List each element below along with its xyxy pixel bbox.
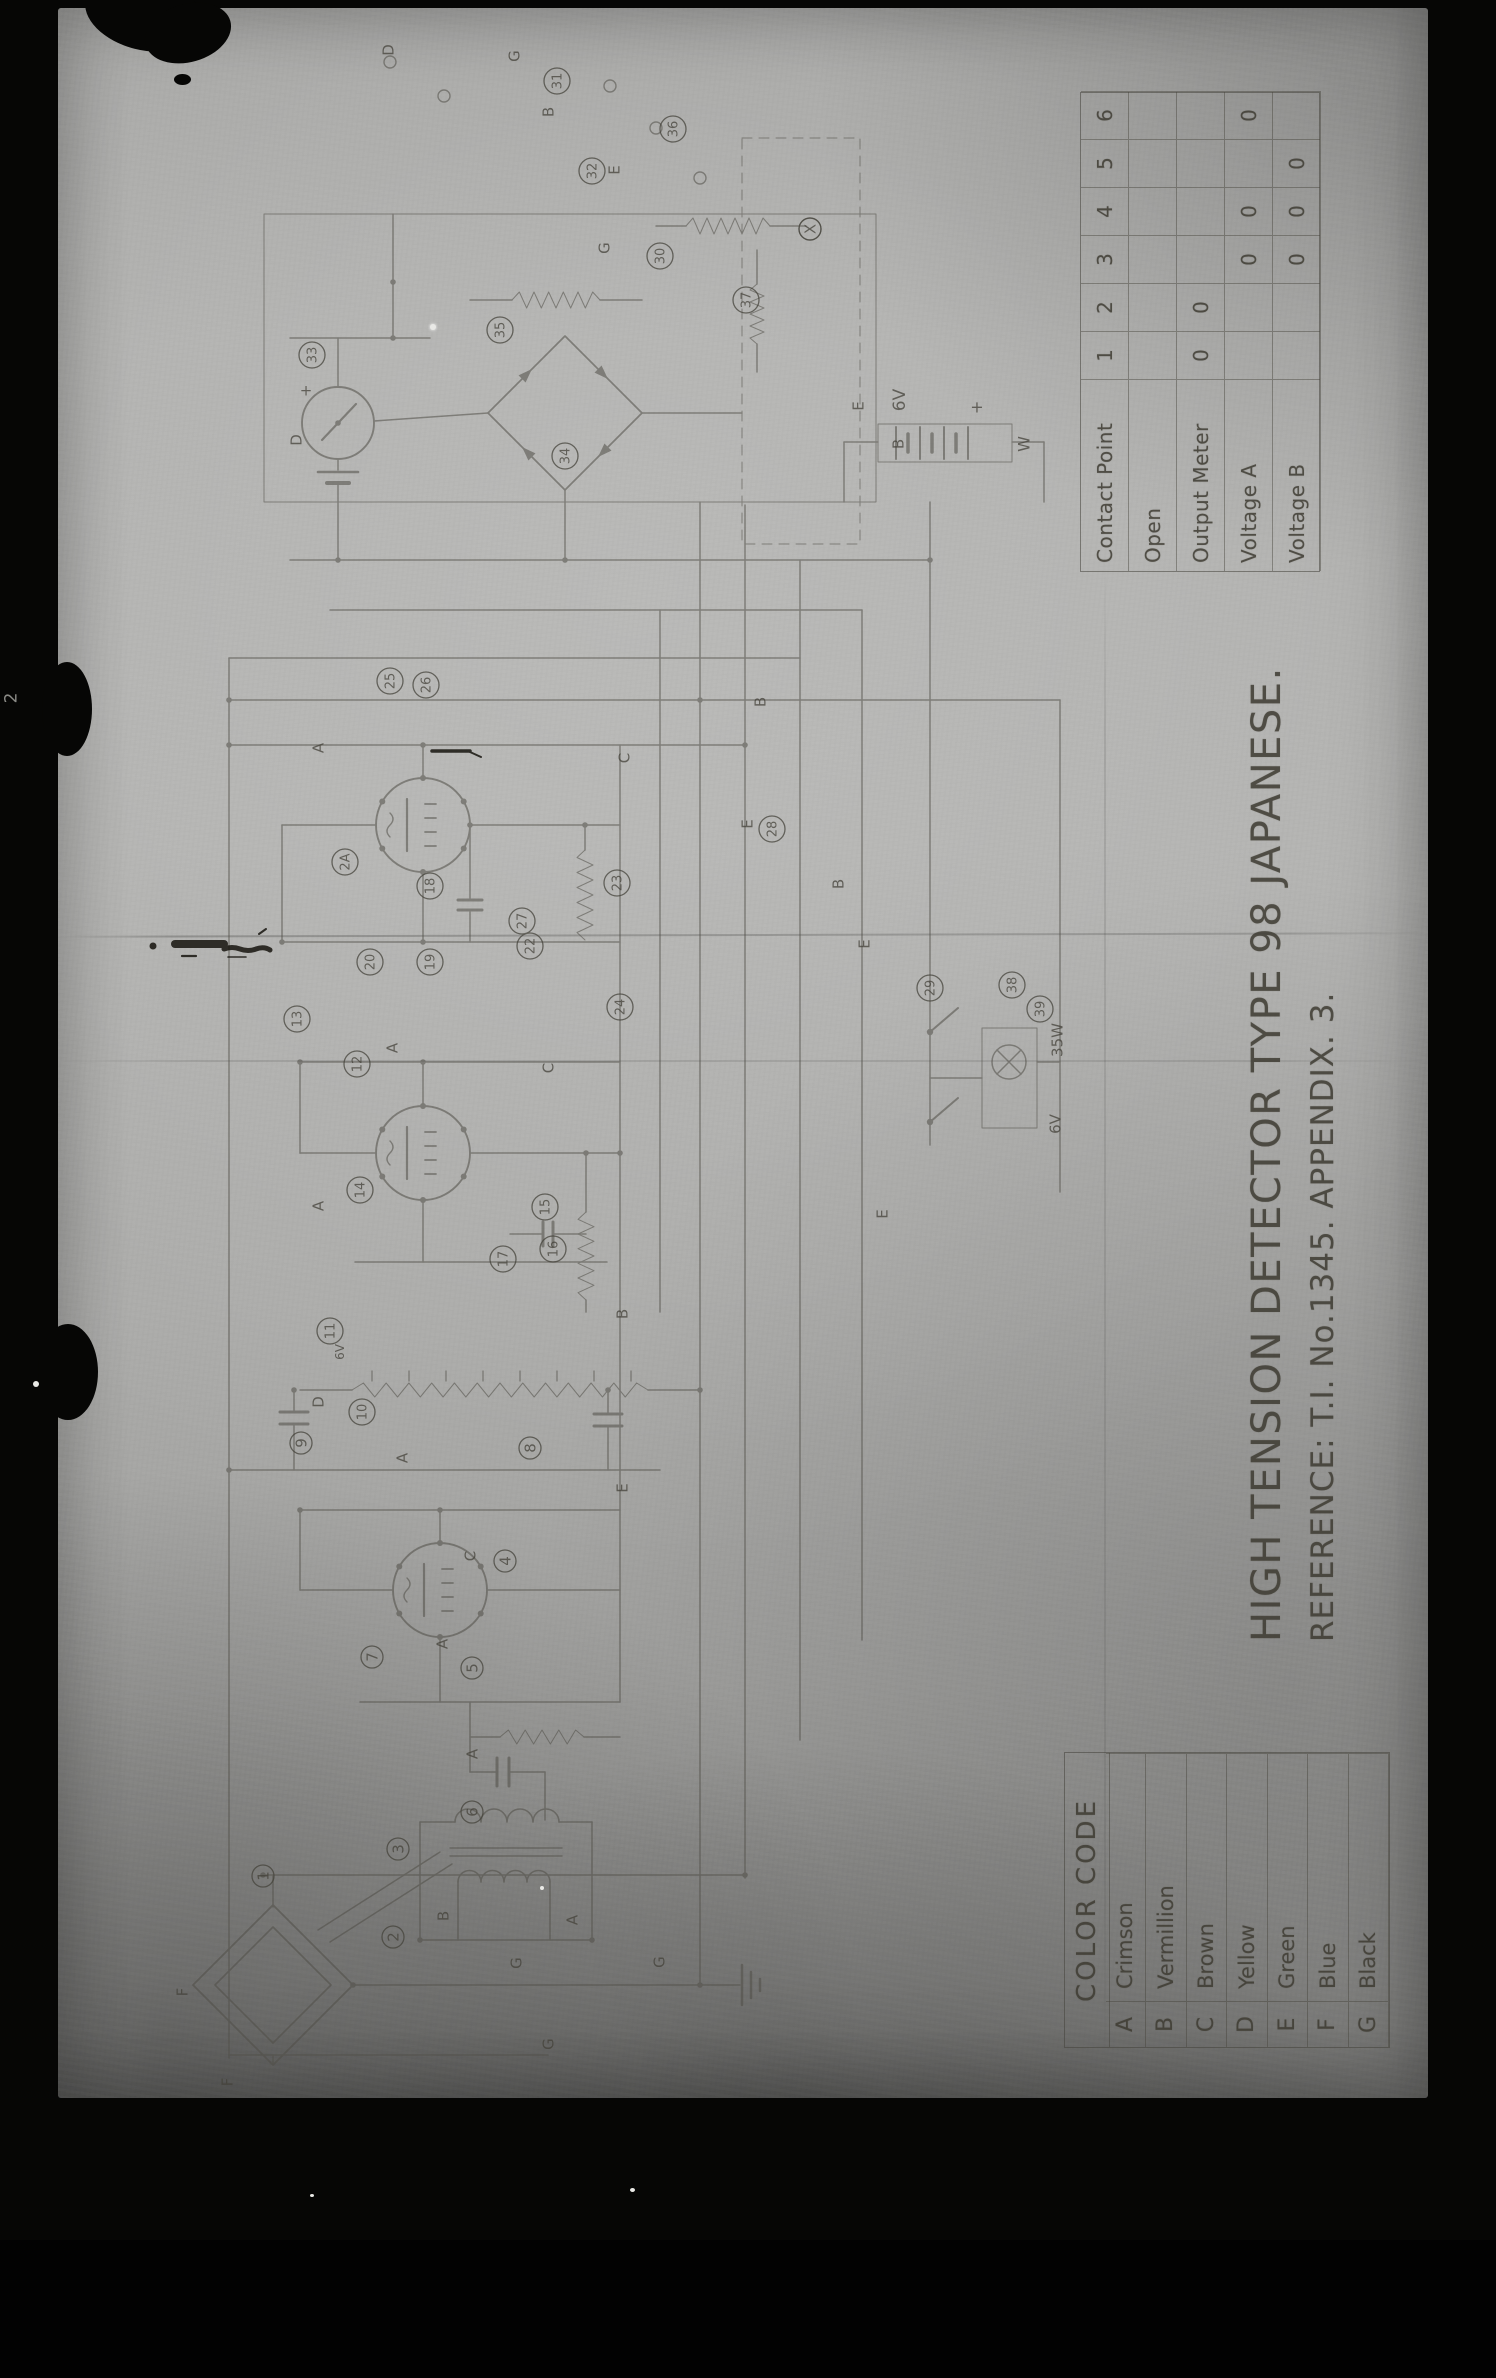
wire-color-letter: C [615, 753, 633, 763]
dust-speck [33, 1381, 39, 1387]
contact-value: 0 [1177, 331, 1225, 379]
color-name: Brown [1187, 1753, 1228, 2001]
contact-value [1177, 235, 1225, 283]
component-number: 29 [924, 980, 939, 997]
component-number: 11 [324, 1323, 339, 1340]
color-code-letter: A [1106, 2001, 1147, 2047]
dust-speck [630, 2188, 635, 2192]
wire-color-letter: B [751, 697, 769, 707]
dust-speck [310, 2194, 314, 2197]
component-number: 9 [292, 1438, 310, 1448]
contact-value: 0 [1225, 91, 1273, 139]
contact-value: 0 [1273, 235, 1321, 283]
contact-number: 3 [1081, 235, 1129, 283]
color-code-letter: D [1227, 2001, 1268, 2047]
contact-row-label: Voltage B [1273, 379, 1321, 571]
contact-value [1273, 331, 1321, 379]
wire-color-letter: C [461, 1551, 479, 1561]
wire-color-letter: G [539, 2038, 557, 2050]
wire-color-letter: E [738, 819, 756, 828]
component-number: 33 [306, 347, 321, 364]
color-name: Green [1268, 1753, 1309, 2001]
component-number: X [801, 224, 819, 234]
wire-color-letter: D [379, 44, 397, 56]
wire-color-letter: B [539, 107, 557, 117]
wire-color-letter: G [650, 1956, 668, 1968]
wire-color-letter: A [563, 1914, 581, 1925]
contact-value [1225, 283, 1273, 331]
wire-color-letter: A [463, 1748, 481, 1759]
schematic-annotation: 35W [1048, 1023, 1066, 1057]
component-number: 25 [384, 673, 399, 690]
contact-value: 0 [1273, 187, 1321, 235]
schematic-annotation: W [1015, 436, 1034, 452]
film-blemish [38, 1324, 98, 1420]
wire-color-letter: A [383, 1042, 401, 1053]
component-number: 24 [614, 999, 629, 1016]
dust-speck [540, 1886, 544, 1890]
component-number: 39 [1034, 1001, 1049, 1018]
component-number: 13 [291, 1011, 306, 1028]
contact-value [1225, 331, 1273, 379]
color-code-letter: B [1146, 2001, 1187, 2047]
component-number: 38 [1006, 977, 1021, 994]
contact-row-label: Open [1129, 379, 1177, 571]
component-number: 23 [611, 875, 626, 892]
contact-number: 5 [1081, 139, 1129, 187]
contact-value: 0 [1177, 283, 1225, 331]
contact-value [1129, 187, 1177, 235]
component-number: 7 [363, 1652, 381, 1662]
contact-value: 0 [1273, 139, 1321, 187]
contact-number: 1 [1081, 331, 1129, 379]
schematic-annotation: + [970, 398, 983, 417]
color-name: Crimson [1106, 1753, 1147, 2001]
schematic-annotation: 6V [1046, 1113, 1064, 1134]
component-number: 2A [339, 853, 354, 870]
contact-value [1129, 91, 1177, 139]
component-number: 5 [463, 1663, 481, 1673]
wire-color-letter: B [434, 1911, 452, 1921]
contact-number: 2 [1081, 283, 1129, 331]
component-number: 14 [354, 1182, 369, 1199]
component-number: 20 [364, 954, 379, 971]
wire-color-letter: A [309, 742, 327, 753]
wire-color-letter: F [173, 1988, 191, 1997]
component-number: 28 [766, 821, 781, 838]
film-border-top [0, 0, 1496, 8]
contact-table-header: Contact Point [1081, 379, 1129, 571]
color-code-title: COLOR CODE [1065, 1753, 1110, 2047]
component-number: 18 [424, 878, 439, 895]
contact-value: 0 [1225, 187, 1273, 235]
component-number: 34 [559, 448, 574, 465]
schematic-annotation: 6V [333, 1343, 347, 1360]
contact-value [1129, 331, 1177, 379]
contact-value [1273, 283, 1321, 331]
wire-color-letter: E [855, 939, 873, 948]
contact-value [1129, 235, 1177, 283]
color-code-letter: E [1268, 2001, 1309, 2047]
contact-value [1129, 283, 1177, 331]
color-name: Blue [1308, 1753, 1349, 2001]
component-number: 30 [654, 248, 669, 265]
component-number: 32 [586, 163, 601, 180]
contact-value [1177, 187, 1225, 235]
color-name: Black [1349, 1753, 1390, 2001]
film-border-bottom [0, 2098, 1496, 2240]
component-number: 22 [524, 938, 539, 955]
component-number: 12 [351, 1056, 366, 1073]
contact-number: 4 [1081, 187, 1129, 235]
wire-color-letter: E [873, 1209, 891, 1218]
wire-color-letter: B [829, 879, 847, 889]
wire-color-letter: E [613, 1483, 631, 1492]
contact-value [1225, 139, 1273, 187]
contact-value [1273, 91, 1321, 139]
contact-value [1177, 139, 1225, 187]
component-number: 4 [496, 1556, 514, 1566]
contact-number: 6 [1081, 91, 1129, 139]
dust-speck [430, 324, 436, 330]
component-number: 19 [424, 954, 439, 971]
component-number: 10 [356, 1404, 371, 1421]
component-number: 31 [551, 73, 566, 90]
wire-color-letter: F [218, 2078, 236, 2087]
wire-color-letter: B [889, 439, 907, 449]
color-code-letter: C [1187, 2001, 1228, 2047]
contact-row-label: Voltage A [1225, 379, 1273, 571]
edge-frame-mark: 2 [1, 693, 21, 704]
wire-color-letter: D [309, 1396, 327, 1408]
film-blemish [174, 74, 191, 85]
component-number: 15 [539, 1199, 554, 1216]
wire-color-letter: G [505, 50, 523, 62]
component-number: 37 [740, 292, 755, 309]
wire-color-letter: E [849, 401, 867, 410]
wire-color-letter: D [287, 434, 305, 446]
schematic-annotation: 6V [890, 388, 910, 411]
color-code-letter: G [1349, 2001, 1390, 2047]
schematic-annotation: + [300, 381, 313, 399]
contact-value [1129, 139, 1177, 187]
film-border-left [0, 0, 58, 2240]
color-name: Vermillion [1146, 1753, 1187, 2001]
component-number: 36 [667, 121, 682, 138]
component-number: 3 [389, 1844, 407, 1854]
component-number: 2 [384, 1932, 402, 1942]
component-number: 6 [463, 1807, 481, 1817]
wire-color-letter: A [393, 1452, 411, 1463]
wire-color-letter: C [539, 1063, 557, 1073]
component-number: 1 [254, 1871, 272, 1881]
wire-color-letter: E [605, 165, 623, 174]
contact-row-label: Output Meter [1177, 379, 1225, 571]
color-name: Yellow [1227, 1753, 1268, 2001]
component-number: 8 [521, 1443, 539, 1453]
component-number: 26 [420, 677, 435, 694]
wire-color-letter: G [507, 1957, 525, 1969]
color-code-letter: F [1308, 2001, 1349, 2047]
film-blemish [42, 662, 92, 756]
contact-value [1177, 91, 1225, 139]
component-number: 35 [494, 322, 509, 339]
wire-color-letter: B [613, 1309, 631, 1319]
component-number: 27 [516, 913, 531, 930]
wire-color-letter: A [309, 1200, 327, 1211]
scanned-photo-stage: 12345678910111213141516171819202A2223242… [0, 0, 1496, 2240]
wire-color-letter: A [433, 1638, 451, 1649]
contact-value: 0 [1225, 235, 1273, 283]
film-border-right [1428, 0, 1496, 2240]
wire-color-letter: G [595, 242, 613, 254]
component-number: 16 [547, 1241, 562, 1258]
component-number: 17 [497, 1251, 512, 1268]
